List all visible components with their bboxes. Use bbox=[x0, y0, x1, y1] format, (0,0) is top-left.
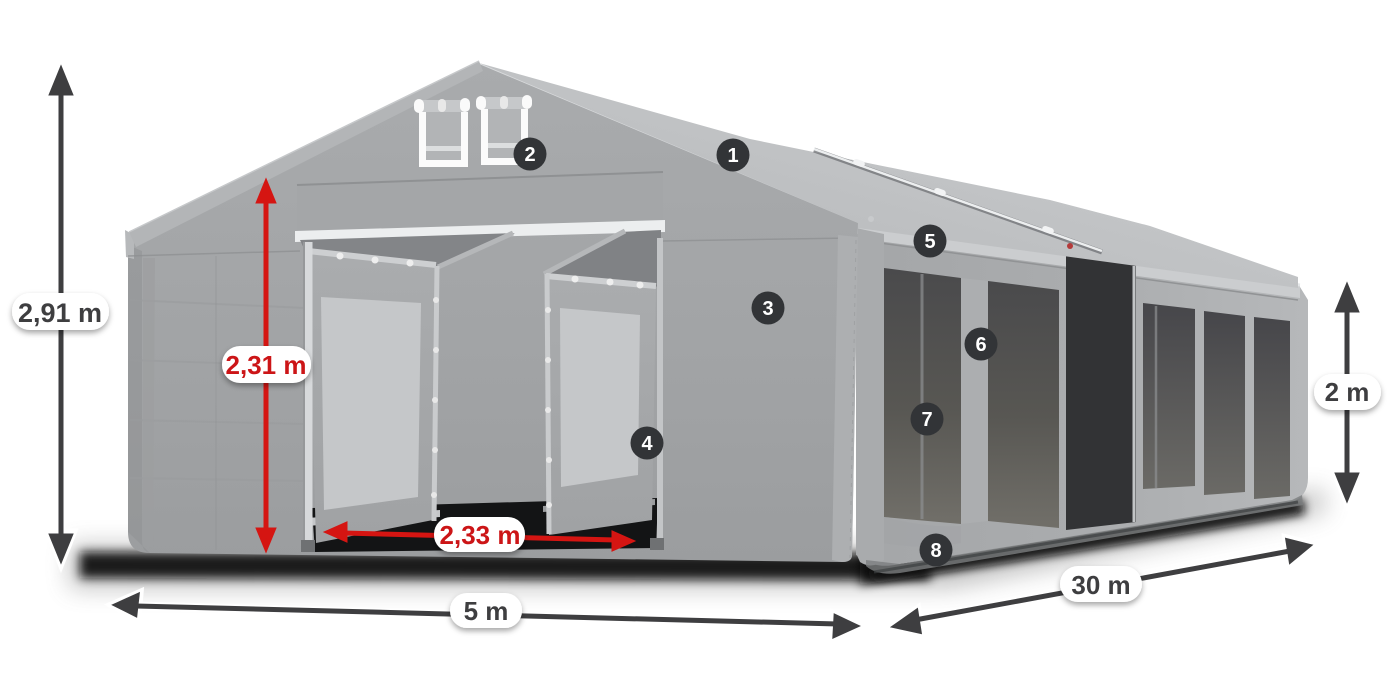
svg-text:2,33 m: 2,33 m bbox=[440, 520, 521, 550]
svg-text:5 m: 5 m bbox=[464, 596, 509, 626]
svg-text:30 m: 30 m bbox=[1071, 570, 1130, 600]
svg-text:2,91 m: 2,91 m bbox=[18, 298, 102, 328]
svg-text:1: 1 bbox=[727, 145, 738, 167]
svg-text:7: 7 bbox=[921, 409, 932, 431]
svg-text:4: 4 bbox=[641, 433, 653, 455]
svg-text:2,31 m: 2,31 m bbox=[226, 350, 307, 380]
svg-text:5: 5 bbox=[924, 231, 935, 253]
svg-text:3: 3 bbox=[762, 298, 773, 320]
svg-text:6: 6 bbox=[975, 334, 986, 356]
svg-text:8: 8 bbox=[930, 540, 941, 562]
svg-text:2: 2 bbox=[524, 144, 535, 166]
svg-text:2 m: 2 m bbox=[1325, 377, 1370, 407]
